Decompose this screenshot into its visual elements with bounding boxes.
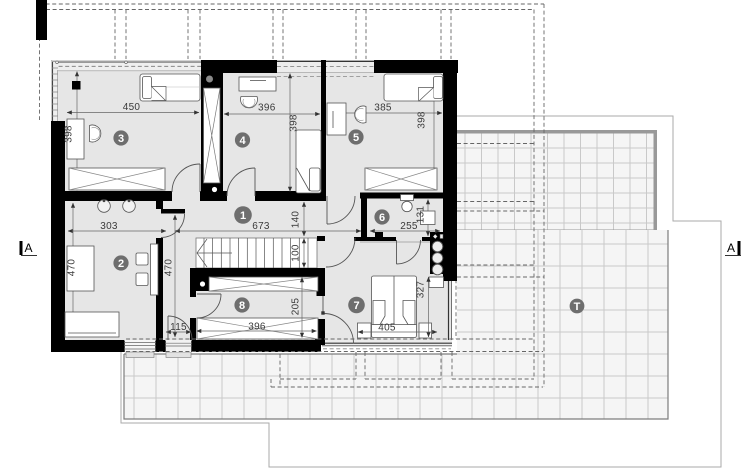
svg-text:5: 5 <box>353 132 359 144</box>
svg-text:673: 673 <box>252 221 270 232</box>
svg-text:8: 8 <box>239 300 245 312</box>
svg-text:131: 131 <box>416 206 427 224</box>
svg-text:1: 1 <box>240 210 246 222</box>
svg-text:A: A <box>24 241 32 255</box>
svg-text:470: 470 <box>164 259 175 277</box>
svg-text:140: 140 <box>291 211 302 229</box>
svg-text:450: 450 <box>123 102 141 113</box>
svg-text:398: 398 <box>289 114 300 132</box>
svg-text:4: 4 <box>239 135 246 147</box>
svg-text:303: 303 <box>100 221 118 232</box>
svg-text:115: 115 <box>170 322 187 333</box>
svg-text:A: A <box>727 241 735 255</box>
svg-text:205: 205 <box>291 298 302 316</box>
svg-text:405: 405 <box>378 323 396 334</box>
svg-text:398: 398 <box>64 125 75 143</box>
svg-text:6: 6 <box>379 212 385 224</box>
svg-text:100: 100 <box>291 244 302 262</box>
svg-text:3: 3 <box>118 133 124 145</box>
svg-text:396: 396 <box>258 103 276 114</box>
svg-text:327: 327 <box>416 281 427 299</box>
svg-text:396: 396 <box>248 322 266 333</box>
svg-text:2: 2 <box>118 258 124 270</box>
svg-text:7: 7 <box>353 300 359 312</box>
svg-text:385: 385 <box>374 103 392 114</box>
svg-text:T: T <box>574 301 581 313</box>
svg-text:398: 398 <box>417 111 428 129</box>
svg-text:470: 470 <box>67 259 78 277</box>
